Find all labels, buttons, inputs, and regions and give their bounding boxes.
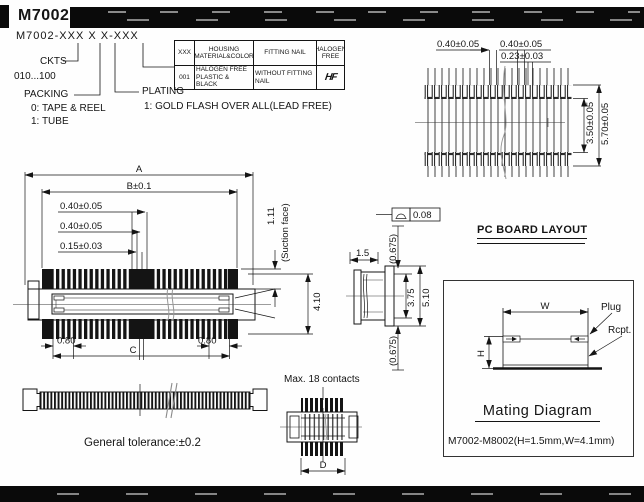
dim-bottom-offset: (0.675)	[388, 336, 399, 366]
small-top-view-drawing: D	[280, 387, 362, 475]
dim-h: H	[476, 350, 487, 357]
dim-cap-height: 1.11	[266, 207, 277, 225]
dim-outer-height: 5.10	[421, 289, 432, 308]
corner-clip	[54, 308, 64, 312]
side-view-drawing: 0.08 (0.675) 1.5	[346, 208, 440, 370]
dim-end-right: 0.80	[198, 336, 217, 347]
dim-w: W	[541, 301, 550, 312]
dim-a: A	[136, 164, 143, 175]
legend-connector-lines	[63, 43, 174, 95]
dim-flatness-tol: 0.08	[413, 210, 432, 221]
dim-end-left: 0.80	[57, 336, 76, 347]
dim-total-height: 4.10	[312, 293, 323, 312]
side-profile	[346, 266, 404, 326]
profile-symbol-icon	[397, 214, 406, 219]
dim-top-offset: (0.675)	[388, 234, 399, 264]
datasheet-page: M7002 M7002-XXX X X-XXX CKTS 010...100 P…	[0, 0, 644, 502]
dim-pad-width: 0.23±0.03	[501, 51, 543, 62]
rcpt-label: Rcpt.	[608, 325, 631, 336]
dim-width: 1.5	[356, 248, 369, 259]
long-side-view-drawing	[23, 383, 267, 418]
corner-clip	[219, 296, 229, 300]
comb-end-block	[228, 319, 238, 339]
dim-pitch2: 0.40±0.05	[60, 221, 102, 232]
comb-center-block	[130, 319, 154, 339]
dim-pitch1: 0.40±0.05	[60, 201, 102, 212]
corner-clip	[219, 308, 229, 312]
comb-end-block	[228, 269, 238, 289]
comb-center-block	[130, 269, 154, 289]
suction-face-label: (Suction face)	[280, 203, 291, 262]
comb-end-block	[42, 319, 52, 339]
mating-diagram-drawing: W H Plug Rcpt.	[476, 301, 631, 369]
technical-drawing-layer: 0.40±0.05 0.40±0.05 0.23±0.03 3.50±0.05 …	[0, 0, 644, 502]
rcpt-leader	[589, 336, 622, 356]
dim-pitch-right: 0.40±0.05	[500, 39, 542, 50]
comb-end-block	[42, 269, 52, 289]
housing-slot	[52, 294, 233, 314]
footprint-dimensions	[436, 50, 601, 166]
dim-outer-span: 5.70±0.05	[600, 103, 611, 145]
footprint-drawing: 0.40±0.05 0.40±0.05 0.23±0.03 3.50±0.05 …	[415, 39, 611, 179]
front-view-drawing: A B±0.1 0.40±0.05 0.40±0.05 0.15±0.03 1.…	[13, 164, 323, 360]
plug-label: Plug	[601, 302, 621, 313]
pin-row-body	[40, 392, 250, 409]
footprint-pad-row-top	[425, 85, 572, 99]
end-cap-right	[250, 389, 267, 411]
end-cap-left	[23, 389, 40, 411]
dim-pitch-left: 0.40±0.05	[437, 39, 479, 50]
dim-b: B±0.1	[127, 181, 152, 192]
footprint-pad-row-bottom	[425, 152, 572, 166]
dim-c: C	[130, 345, 137, 356]
dim-d: D	[320, 460, 327, 471]
dim-inner-height: 3.75	[406, 289, 417, 308]
corner-clip	[54, 296, 64, 300]
dim-inner-span: 3.50±0.05	[585, 102, 596, 144]
dim-pin-width: 0.15±0.03	[60, 241, 102, 252]
